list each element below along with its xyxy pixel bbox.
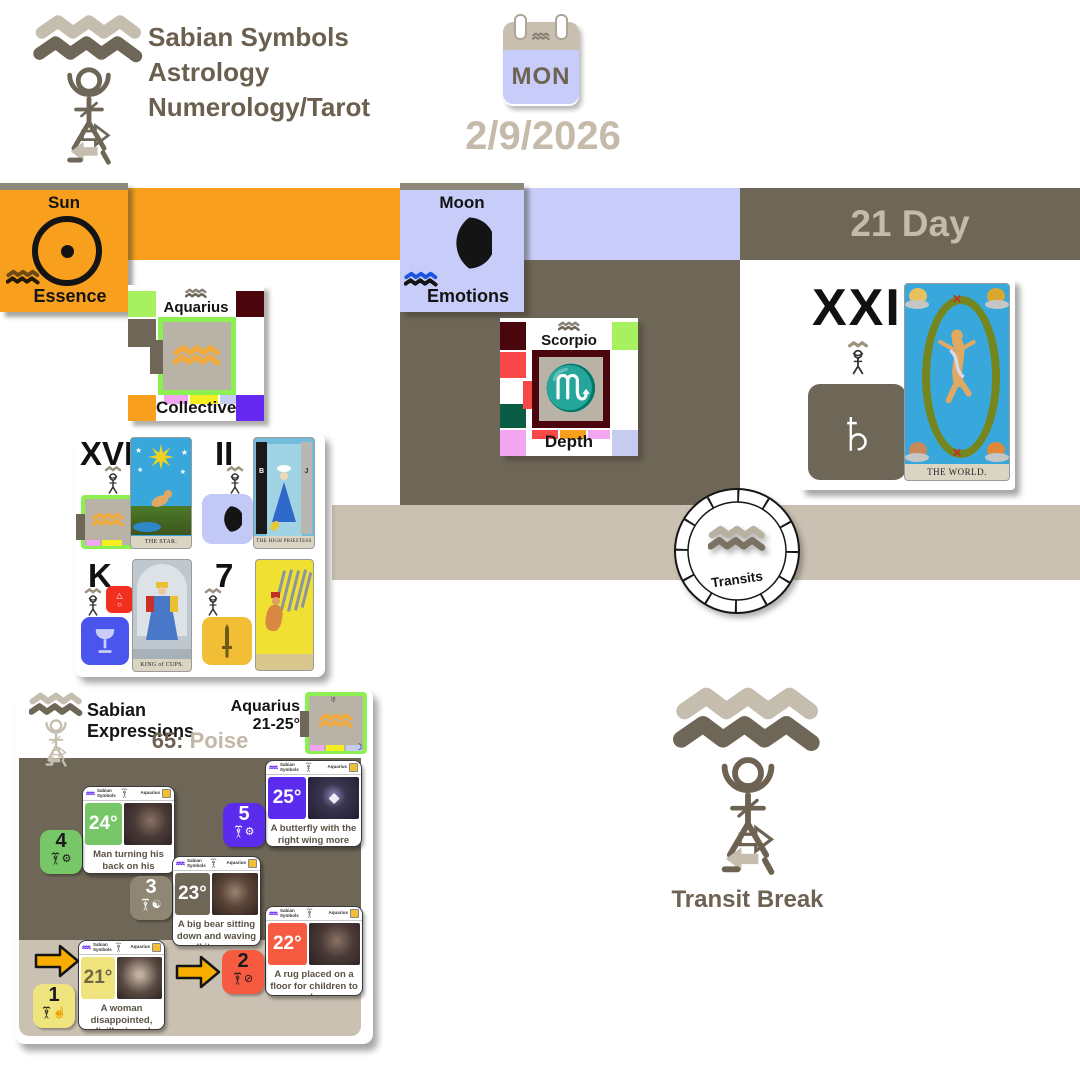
sun-box: Sun Essence <box>0 183 128 312</box>
degree-badge: 22° <box>268 923 307 965</box>
stick-figure-icon <box>35 718 77 768</box>
moon-icon: ☽ <box>355 742 363 753</box>
hand-idea-icon: ☝ <box>53 1007 67 1019</box>
calendar-ring-icon <box>514 14 527 40</box>
mini-brand-logo-icon <box>305 762 312 773</box>
yin-yang-icon: ☯ <box>152 899 162 911</box>
degree-card-header: Sabian Symbols Aquarius <box>79 941 164 955</box>
degree-image <box>124 803 172 845</box>
big-star-icon <box>146 442 176 472</box>
chalice-icon <box>94 627 116 655</box>
color-strip <box>86 540 100 546</box>
degree-card-header: Sabian Symbols Aquarius <box>83 787 174 801</box>
card-brand-label: Sabian Symbols <box>280 763 297 772</box>
card-brand-label: Sabian Symbols <box>187 859 204 868</box>
degree-card-body: 21° <box>79 955 164 1001</box>
sabian-expressions-panel: Sabian Expressions 65: Poise Aquarius 21… <box>15 688 373 1044</box>
stick-figure-icon <box>46 66 132 166</box>
mini-brand-logo-icon <box>83 588 103 618</box>
calendar-top <box>503 22 579 50</box>
aquarius-waves-icon <box>269 765 278 770</box>
mini-brand-logo-icon <box>210 858 217 869</box>
mini-sign-chip <box>248 859 257 868</box>
aquarius-waves-icon <box>673 686 823 756</box>
cloud-shape <box>905 453 929 462</box>
cloud-shape <box>905 300 929 309</box>
calendar-ring-icon <box>555 14 568 40</box>
world-card-panel: XXI ♄ ✕ ✕ THE WO <box>800 278 1015 490</box>
brand-title-line: Astrology <box>148 55 370 90</box>
chip-tab <box>300 711 309 737</box>
degree-text: A woman disappointed, disillusioned <box>79 1001 164 1030</box>
moon-box: Moon Emotions <box>400 183 524 312</box>
transit-break: Transit Break <box>645 686 850 914</box>
card-brand-label: Sabian Symbols <box>93 943 110 952</box>
machine-gear-icon: ⚙ <box>62 853 72 865</box>
numerology-badge-5: 5 ⚙ <box>223 803 265 847</box>
stick-figure-icon <box>51 852 60 866</box>
sabian-sign-range: Aquarius 21-25° <box>220 698 300 734</box>
color-tile <box>612 430 638 456</box>
color-tile <box>500 352 526 378</box>
dais-shape <box>133 649 191 659</box>
fire-triangle-icon: △ <box>116 591 122 600</box>
day-header-bar: 21 Day <box>740 188 1080 260</box>
badge-number: 3 <box>145 877 156 898</box>
ribbon-icon: ✕ <box>952 446 962 460</box>
moon-label: Emotions <box>400 286 524 307</box>
badge-number: 5 <box>238 804 249 825</box>
sabian-degree-card-22: Sabian Symbols Aquarius 22° A rug placed… <box>265 906 363 996</box>
card-caption: THE HIGH PRIESTESS <box>254 536 314 548</box>
star-tarot-card: ★ ★ ★ ★ THE STAR. <box>130 437 192 549</box>
stick-figure-icon <box>233 972 242 986</box>
card-sign-label: Aquarius <box>140 791 160 796</box>
cape-shape <box>146 596 154 612</box>
mini-sign-chip <box>162 789 171 798</box>
calendar-weekday: MON <box>503 50 579 104</box>
color-tile <box>236 395 264 421</box>
numerology-badge-2: 2 ⊘ <box>222 950 264 994</box>
sword-icon <box>220 624 234 658</box>
pool-shape <box>133 522 161 532</box>
figure-head <box>280 472 288 480</box>
panel-tab <box>150 340 163 374</box>
cloud-shape <box>985 453 1009 462</box>
figure-head <box>164 490 172 498</box>
aquarius-glyph-panel <box>158 317 236 395</box>
sign-keyword: Collective <box>156 398 236 418</box>
scorpio-sign-box: Scorpio ♏ Depth <box>500 318 638 456</box>
sabian-logo <box>29 692 83 768</box>
degree-image <box>309 923 360 965</box>
figure-head <box>158 587 166 595</box>
numerology-badge-4: 4 ⚙ <box>40 830 82 874</box>
badge-number: 1 <box>48 985 59 1006</box>
degree-badge: 23° <box>175 873 210 915</box>
cloud-shape <box>985 300 1009 309</box>
ground-shape <box>256 654 313 670</box>
color-strip <box>310 745 324 751</box>
sign-name: Aquarius <box>156 299 236 316</box>
stick-figure-icon <box>234 825 243 839</box>
mini-brand-logo-icon <box>203 588 223 618</box>
sign-header: Aquarius <box>156 288 236 316</box>
badge-icons: ⚙ <box>51 852 72 866</box>
scorpio-symbol-icon: ♏ <box>544 367 599 411</box>
brand-title: Sabian Symbols Astrology Numerology/Taro… <box>148 20 370 125</box>
sign-name: Scorpio <box>526 332 612 349</box>
mini-brand-logo-icon <box>306 908 313 919</box>
brand-title-line: Numerology/Tarot <box>148 90 370 125</box>
date-text: 2/9/2026 <box>448 114 638 159</box>
mini-brand-logo-icon <box>115 942 122 953</box>
degree-card-body: 22° <box>266 921 362 967</box>
mini-sign-chip <box>152 943 161 952</box>
world-tarot-card: ✕ ✕ THE WORLD. <box>904 283 1010 481</box>
sun-dot <box>61 245 74 258</box>
color-tile <box>500 322 526 350</box>
mini-brand-logo-icon <box>121 788 128 799</box>
king-of-cups-tarot-card: KING of CUPS. <box>132 559 192 672</box>
sign-range-line: 21-25° <box>220 716 300 734</box>
degree-badge: 24° <box>85 803 122 845</box>
no-entry-icon: ⊘ <box>244 973 253 985</box>
water-drop-icon: ○ <box>117 600 122 609</box>
sabian-degree-card-23: Sabian Symbols Aquarius 23° A big bear s… <box>172 856 261 946</box>
badge-icons: ☝ <box>42 1006 67 1020</box>
degree-image <box>117 957 162 999</box>
sabian-degree-card-21: Sabian Symbols Aquarius 21° A woman disa… <box>78 940 165 1030</box>
saturn-chip: ♄ <box>808 384 906 480</box>
badge-number: 2 <box>237 951 248 972</box>
color-tile <box>612 322 638 350</box>
figure-body <box>264 604 284 632</box>
degree-card-header: Sabian Symbols Aquarius <box>266 907 362 921</box>
stick-figure-icon <box>696 756 800 876</box>
aquarius-symbol-icon <box>319 710 353 732</box>
cape-shape <box>170 596 178 612</box>
uranus-icon: ♅ <box>330 694 337 704</box>
high-priestess-tarot-card: B J THE HIGH PRIESTESS <box>253 437 315 549</box>
degree-badge: 21° <box>81 957 115 999</box>
mini-brand-logo-icon <box>225 466 245 496</box>
card-brand-label: Sabian Symbols <box>280 909 297 918</box>
brand-logo <box>30 14 148 190</box>
moon-mini-chip <box>202 494 253 544</box>
card-sign-label: Aquarius <box>327 765 347 770</box>
cup-suit-chip <box>81 617 129 665</box>
highlight-arrow-icon <box>34 943 80 979</box>
stick-figure-icon <box>141 898 150 912</box>
degree-text: A rug placed on a floor for children to … <box>266 967 362 996</box>
infographic-canvas: Sabian Symbols Astrology Numerology/Taro… <box>0 0 1080 1080</box>
fire-water-chip: △ ○ <box>106 586 133 613</box>
ribbon-icon: ✕ <box>952 292 962 306</box>
numerology-badge-1: 1 ☝ <box>33 984 75 1028</box>
scorpio-glyph-panel: ♏ <box>532 350 610 428</box>
small-star-icon: ★ <box>181 448 188 457</box>
aquarius-mini-chip: ♅ ☽ <box>305 692 367 754</box>
sign-range-line: Aquarius <box>220 698 300 716</box>
crown-icon <box>277 465 291 472</box>
aquarius-waves-icon <box>708 520 766 558</box>
calendar-icon: MON <box>503 22 579 106</box>
crescent-moon-icon <box>436 212 492 274</box>
stick-figure-icon <box>42 1006 51 1020</box>
color-tile <box>128 291 156 317</box>
small-star-icon: ★ <box>137 466 143 474</box>
dancer-figure <box>932 312 982 422</box>
sun-icon <box>32 216 102 286</box>
color-tile <box>128 395 156 421</box>
degree-text: Man turning his back on his passions tea… <box>83 847 174 874</box>
pillar-b: B <box>256 442 267 534</box>
badge-icons: ☯ <box>141 898 162 912</box>
card-caption: KING of CUPS. <box>133 659 191 671</box>
mini-brand-logo-icon <box>103 466 123 496</box>
aquarius-waves-icon <box>558 321 580 332</box>
mini-brand-logo-icon <box>846 340 870 378</box>
degree-card-body: 24° <box>83 801 174 847</box>
sabian-title-line: Sabian <box>87 700 194 721</box>
card-sign-label: Aquarius <box>226 861 246 866</box>
numerology-badge-3: 3 ☯ <box>130 876 172 920</box>
sun-title: Sun <box>0 193 128 213</box>
mini-sign-chip <box>350 909 359 918</box>
seven-of-swords-tarot-card <box>255 559 314 671</box>
transits-wheel: Transits <box>672 486 802 616</box>
color-tile <box>500 430 526 456</box>
badge-number: 4 <box>55 831 66 852</box>
crescent-moon-icon <box>214 502 242 536</box>
degree-card-body: 23° <box>173 871 260 917</box>
degree-badge: 25° <box>268 777 306 819</box>
aquarius-mini-chip <box>81 495 135 549</box>
sabian-degree-card-25: Sabian Symbols Aquarius 25° A butterfly … <box>265 760 362 847</box>
color-tile <box>236 291 264 317</box>
aquarius-waves-icon <box>82 945 91 950</box>
degree-image <box>212 873 258 915</box>
degree-card-body: 25° <box>266 775 361 821</box>
small-star-icon: ★ <box>135 446 142 455</box>
small-star-icon: ★ <box>180 468 186 476</box>
aquarius-waves-icon <box>33 14 145 66</box>
degree-text: A butterfly with the right wing more per… <box>266 821 361 847</box>
card-sign-label: Aquarius <box>328 911 348 916</box>
aquarius-waves-icon <box>269 911 278 916</box>
tarot-grid-panel: XVII ★ ★ ★ ★ THE STAR. II B J <box>75 433 325 677</box>
badge-icons: ⚙ <box>234 825 255 839</box>
aquarius-sign-box: Aquarius Collective <box>128 285 264 421</box>
aquarius-symbol-icon <box>173 340 221 372</box>
color-strip <box>102 540 122 546</box>
badge-icons: ⊘ <box>233 972 253 986</box>
card-caption: THE STAR. <box>131 536 191 548</box>
card-brand-label: Sabian Symbols <box>97 789 114 798</box>
numerology-number: 65: <box>152 728 184 753</box>
panel-tab <box>523 381 532 409</box>
card-sign-label: Aquarius <box>130 945 150 950</box>
aquarius-symbol-icon <box>92 509 124 531</box>
aquarius-waves-icon <box>29 692 83 718</box>
highlight-arrow-icon <box>175 954 221 990</box>
saturn-symbol-icon: ♄ <box>834 397 881 468</box>
chip-tab <box>76 514 85 540</box>
aquarius-waves-icon <box>6 269 40 286</box>
degree-card-header: Sabian Symbols Aquarius <box>266 761 361 775</box>
aquarius-waves-icon <box>86 791 95 796</box>
tarot-numeral: XXI <box>812 278 902 338</box>
sword-suit-chip <box>202 617 252 665</box>
degree-image <box>308 777 359 819</box>
sun-label: Essence <box>0 286 128 307</box>
sign-header: Scorpio <box>526 321 612 349</box>
sign-keyword: Depth <box>526 432 612 452</box>
aquarius-waves-icon <box>532 32 550 41</box>
moon-title: Moon <box>400 193 524 213</box>
mind-gear-icon: ⚙ <box>245 826 255 838</box>
transit-break-label: Transit Break <box>671 886 823 914</box>
sabian-degree-card-24: Sabian Symbols Aquarius 24° Man turning … <box>82 786 175 874</box>
butterfly-icon <box>329 793 340 804</box>
aquarius-waves-icon <box>185 288 207 299</box>
brand-title-line: Sabian Symbols <box>148 20 370 55</box>
degree-card-header: Sabian Symbols Aquarius <box>173 857 260 871</box>
aquarius-waves-icon <box>176 861 185 866</box>
moon-row-bar <box>523 188 740 260</box>
card-caption: THE WORLD. <box>905 464 1009 480</box>
color-strip <box>326 745 344 751</box>
pillar-j: J <box>301 442 312 534</box>
degree-text: A big bear sitting down and waving all i… <box>173 917 260 946</box>
mini-sign-chip <box>349 763 358 772</box>
